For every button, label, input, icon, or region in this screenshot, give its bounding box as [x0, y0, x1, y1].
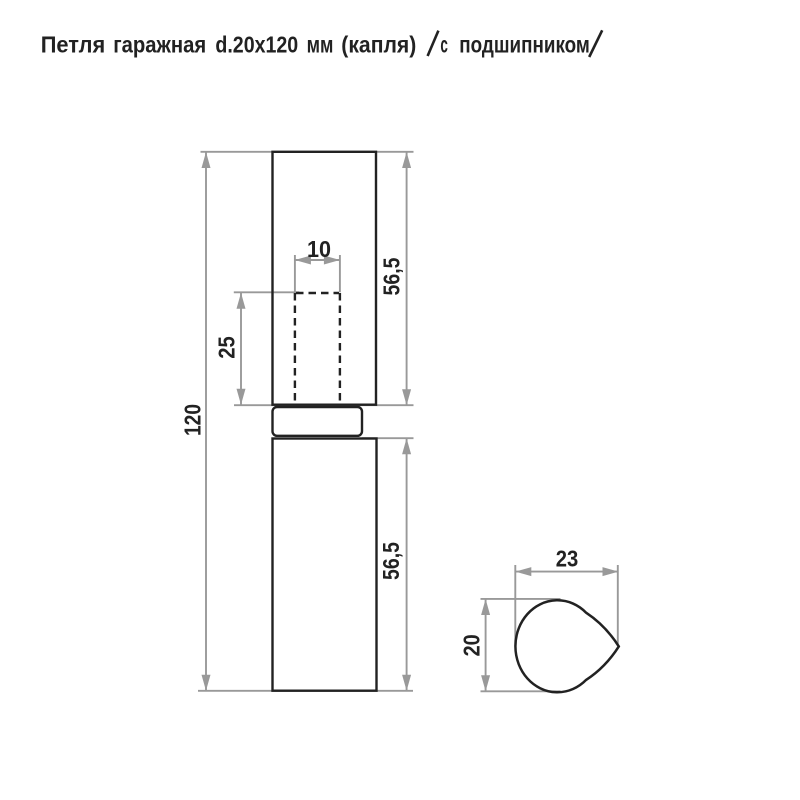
svg-text:23: 23: [556, 546, 579, 572]
svg-text:20: 20: [458, 634, 484, 656]
svg-text:56,5: 56,5: [378, 542, 404, 580]
svg-text:гаражная: гаражная: [113, 32, 206, 58]
svg-text:120: 120: [180, 404, 206, 436]
svg-text:(капля): (капля): [341, 32, 416, 58]
svg-text:25: 25: [214, 336, 240, 359]
svg-text:подшипником: подшипником: [459, 32, 590, 58]
svg-text:мм: мм: [307, 32, 334, 58]
svg-text:Петля: Петля: [41, 32, 106, 58]
svg-text:d.20x120: d.20x120: [215, 32, 298, 58]
svg-text:с: с: [440, 32, 448, 58]
svg-text:10: 10: [307, 236, 331, 262]
svg-text:56,5: 56,5: [379, 257, 405, 295]
